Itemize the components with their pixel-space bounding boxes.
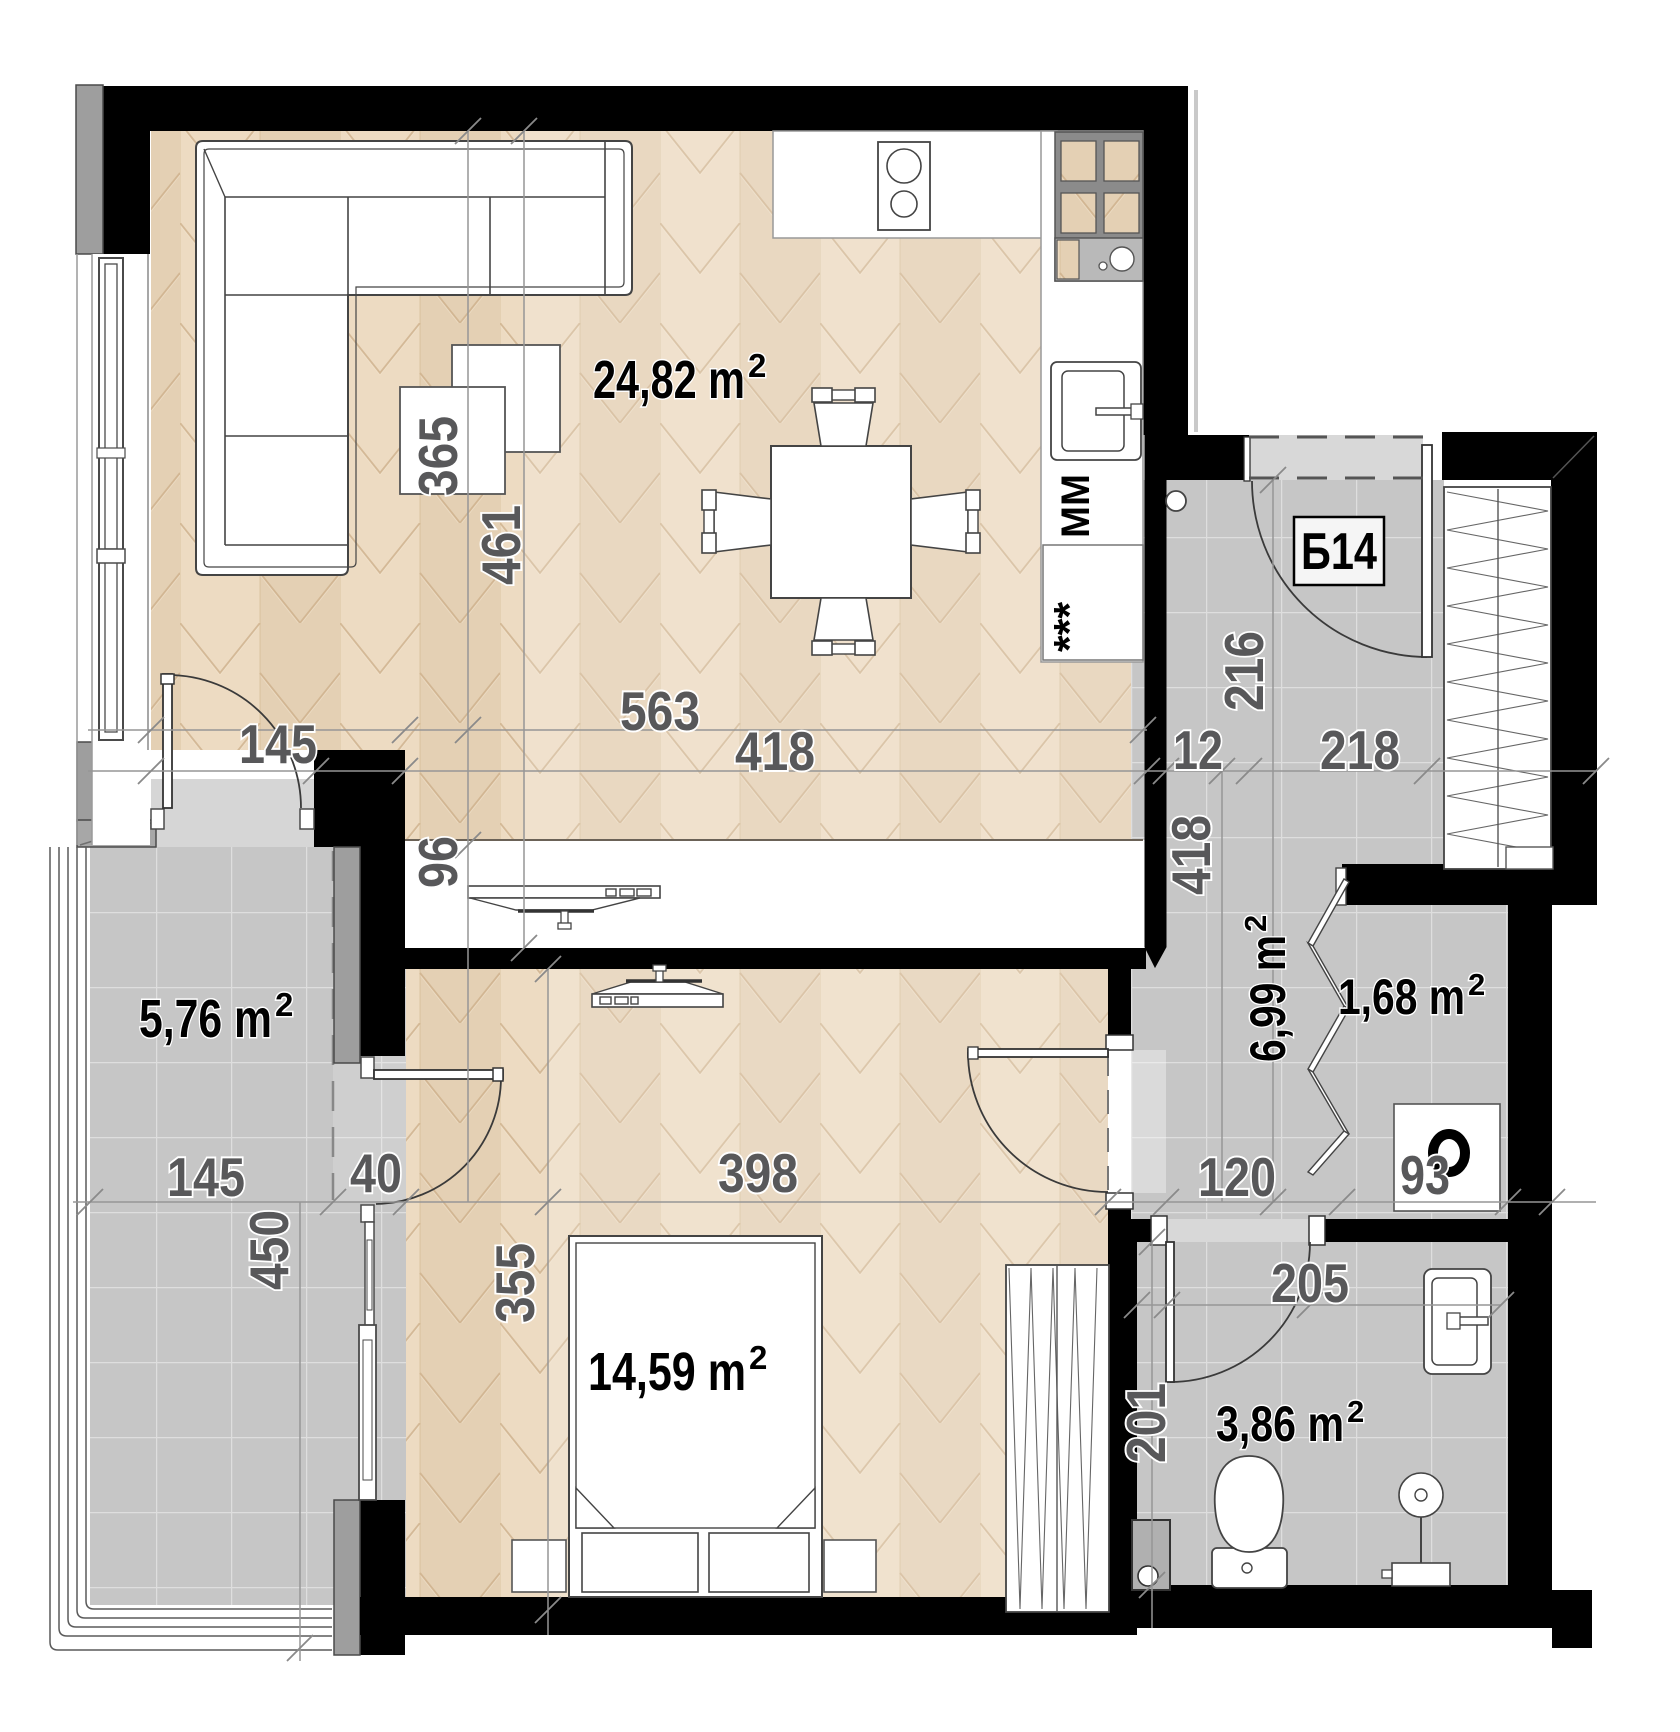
svg-text:365: 365 (407, 416, 469, 496)
svg-text:14,59 m: 14,59 m (588, 1342, 746, 1402)
svg-text:418: 418 (1160, 815, 1222, 895)
svg-text:93: 93 (1400, 1144, 1450, 1206)
svg-text:MM: MM (1054, 474, 1098, 538)
svg-text:6,99 m: 6,99 m (1240, 935, 1296, 1062)
svg-text:2: 2 (275, 986, 293, 1023)
svg-text:2: 2 (1347, 1394, 1364, 1429)
svg-text:145: 145 (239, 713, 317, 775)
svg-text:5,76 m: 5,76 m (139, 989, 272, 1049)
svg-text:12: 12 (1173, 719, 1223, 781)
svg-text:1,68 m: 1,68 m (1338, 969, 1465, 1025)
svg-text:218: 218 (1320, 719, 1400, 781)
svg-text:216: 216 (1213, 631, 1275, 711)
svg-text:461: 461 (470, 505, 532, 585)
svg-text:201: 201 (1115, 1383, 1177, 1463)
svg-text:145: 145 (167, 1146, 245, 1208)
svg-text:418: 418 (735, 720, 815, 782)
svg-text:205: 205 (1271, 1252, 1349, 1314)
svg-text:2: 2 (748, 347, 766, 384)
svg-text:450: 450 (238, 1210, 300, 1290)
svg-text:398: 398 (718, 1142, 798, 1204)
svg-text:120: 120 (1198, 1146, 1276, 1208)
svg-text:40: 40 (350, 1142, 402, 1204)
svg-text:2: 2 (1468, 967, 1485, 1002)
svg-text:96: 96 (407, 836, 469, 888)
svg-text:2: 2 (749, 1339, 767, 1376)
svg-text:563: 563 (620, 680, 700, 742)
svg-text:3,86 m: 3,86 m (1216, 1396, 1344, 1452)
svg-text:355: 355 (484, 1243, 546, 1323)
svg-text:2: 2 (1238, 915, 1273, 932)
svg-text:Б14: Б14 (1301, 523, 1377, 581)
svg-text:***: *** (1045, 601, 1094, 652)
svg-text:24,82 m: 24,82 m (593, 350, 745, 410)
